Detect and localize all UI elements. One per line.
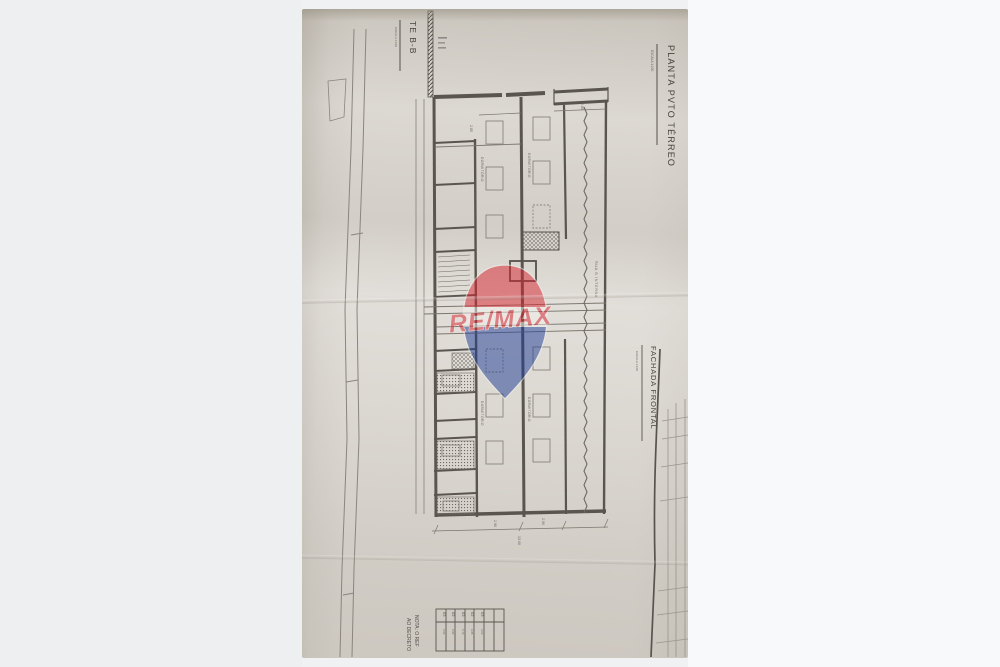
note-line-1: NOTA: O REF: [413, 615, 419, 647]
bottom-annotations: NOTA: O REF AO DECRETO 03 02 03 02: [405, 609, 504, 651]
svg-text:03: 03: [442, 612, 447, 617]
svg-text:2.85: 2.85: [580, 103, 584, 110]
section-label-group: TE B-B ESCALA 1:100: [394, 20, 418, 71]
svg-text:DORMITÓRIO: DORMITÓRIO: [480, 401, 485, 426]
facade-scale: ESCALA 1:100: [635, 351, 639, 371]
balloon-red: [457, 259, 553, 307]
svg-text:03: 03: [480, 612, 485, 617]
svg-text:02: 02: [451, 612, 456, 617]
svg-text:0.90: 0.90: [442, 629, 446, 635]
plan-title: PLANTA PVTO TÉRREO: [666, 45, 676, 167]
svg-text:0.85: 0.85: [470, 629, 474, 635]
facade-section: FACHADA FRONTAL ESCALA 1:100: [635, 345, 688, 657]
section-title: TE B-B: [408, 21, 418, 54]
svg-text:03: 03: [461, 612, 466, 617]
svg-text:DORMITÓRIO: DORMITÓRIO: [527, 397, 532, 422]
svg-text:2.90: 2.90: [493, 520, 497, 527]
svg-text:13.00: 13.00: [517, 536, 521, 545]
svg-text:2.85: 2.85: [469, 125, 473, 132]
plan-title-group: PLANTA PVTO TÉRREO ESCALA 1:100: [650, 44, 676, 167]
svg-text:2.90: 2.90: [541, 518, 545, 525]
break-line: [584, 107, 587, 513]
svg-text:DORMITÓRIO: DORMITÓRIO: [527, 153, 532, 178]
svg-text:0.80: 0.80: [451, 629, 455, 635]
screenshot-stage: TE B-B ESCALA 1:100: [0, 0, 1000, 667]
svg-text:02: 02: [470, 612, 475, 617]
floorplan-photo: TE B-B ESCALA 1:100: [302, 9, 688, 658]
sheet-border: [328, 29, 366, 657]
svg-text:DORMITÓRIO: DORMITÓRIO: [480, 157, 485, 182]
svg-text:0.76: 0.76: [461, 629, 465, 635]
section-scale: ESCALA 1:100: [394, 27, 398, 47]
note-line-2: AO DECRETO: [405, 618, 411, 651]
plan-scale: ESCALA 1:100: [650, 50, 654, 71]
letterbox-left: [0, 0, 302, 667]
boundary-wall-hatched: [428, 11, 447, 97]
svg-text:3.06: 3.06: [480, 629, 484, 635]
letterbox-right: [688, 0, 1000, 667]
street-label: RUA B INTERNA: [594, 261, 598, 298]
blueprint-drawing: TE B-B ESCALA 1:100: [302, 9, 688, 658]
